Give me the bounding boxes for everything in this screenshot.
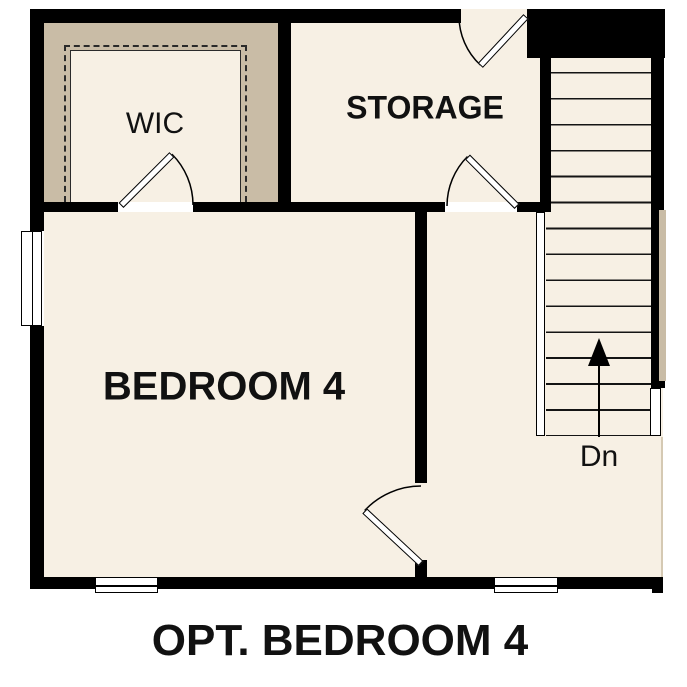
- storage-bottom-door-arc: [447, 157, 468, 207]
- stair-direction-label: Dn: [580, 440, 618, 474]
- storage-label: STORAGE: [346, 90, 504, 127]
- storage-top-door-arc: [459, 16, 480, 65]
- wic-door-arc: [172, 154, 193, 205]
- plan-caption: OPT. BEDROOM 4: [152, 616, 529, 666]
- floor-plan: WIC STORAGE BEDROOM 4 Dn OPT. BEDROOM 4: [0, 0, 687, 687]
- wic-label: WIC: [126, 107, 184, 141]
- bedroom-door-arc: [365, 486, 421, 511]
- bedroom-label: BEDROOM 4: [103, 365, 345, 410]
- door-swing-arcs: [0, 0, 687, 687]
